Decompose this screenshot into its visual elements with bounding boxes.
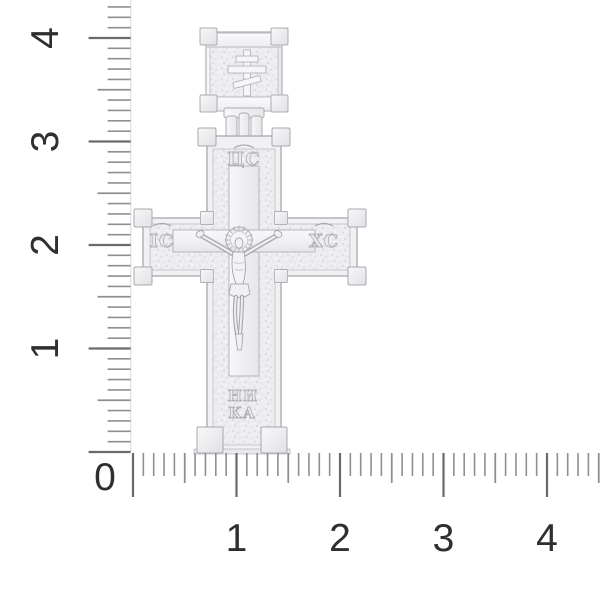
tip-cube bbox=[272, 128, 290, 146]
v-ruler-number-2: 2 bbox=[24, 234, 67, 256]
inscription-top: ЦС bbox=[227, 149, 261, 170]
inscription-left: ІС bbox=[150, 231, 175, 252]
vertical-ruler: 1 2 3 4 bbox=[24, 0, 131, 452]
scene-svg: ЦС ІС ХС НИ КА bbox=[0, 0, 600, 600]
hinge bbox=[224, 108, 264, 140]
inscription-right: ХС bbox=[309, 231, 339, 252]
bail-corner-cube bbox=[200, 95, 217, 112]
bail-corner-cube bbox=[200, 28, 217, 45]
bail-corner-cube bbox=[271, 95, 288, 112]
corner-cube bbox=[275, 212, 288, 225]
ruler-origin-label: 0 bbox=[94, 456, 116, 499]
inscription-nika-line1: НИ bbox=[228, 387, 258, 405]
pendant: ЦС ІС ХС НИ КА bbox=[134, 28, 366, 454]
corner-cube bbox=[275, 270, 288, 283]
corner-cube bbox=[201, 212, 214, 225]
v-ruler-number-3: 3 bbox=[24, 131, 67, 153]
v-ruler-number-1: 1 bbox=[24, 338, 67, 360]
inscription-nika-line2: КА bbox=[228, 404, 256, 422]
h-ruler-number-4: 4 bbox=[536, 517, 558, 560]
foot-cube bbox=[197, 427, 223, 453]
bail bbox=[200, 28, 288, 112]
h-ruler-number-3: 3 bbox=[433, 517, 455, 560]
v-ruler-number-4: 4 bbox=[24, 27, 67, 49]
corner-cube bbox=[201, 270, 214, 283]
hinge-link bbox=[226, 116, 237, 138]
h-ruler-number-1: 1 bbox=[226, 517, 248, 560]
horizontal-ruler: 1 2 3 4 bbox=[133, 453, 599, 560]
h-ruler-number-2: 2 bbox=[329, 517, 351, 560]
loincloth bbox=[229, 284, 250, 298]
product-photo: ЦС ІС ХС НИ КА bbox=[0, 0, 600, 600]
bail-corner-cube bbox=[271, 28, 288, 45]
tip-cube bbox=[198, 128, 216, 146]
vertical-ruler-ticks bbox=[89, 7, 131, 452]
head bbox=[235, 238, 243, 248]
foot-cube bbox=[261, 427, 287, 453]
tip-cube bbox=[348, 209, 366, 227]
hinge-link bbox=[251, 116, 262, 138]
tip-cube bbox=[134, 267, 152, 285]
torso bbox=[232, 252, 245, 284]
tip-cube bbox=[134, 209, 152, 227]
tip-cube bbox=[348, 267, 366, 285]
horizontal-ruler-ticks bbox=[133, 453, 599, 497]
